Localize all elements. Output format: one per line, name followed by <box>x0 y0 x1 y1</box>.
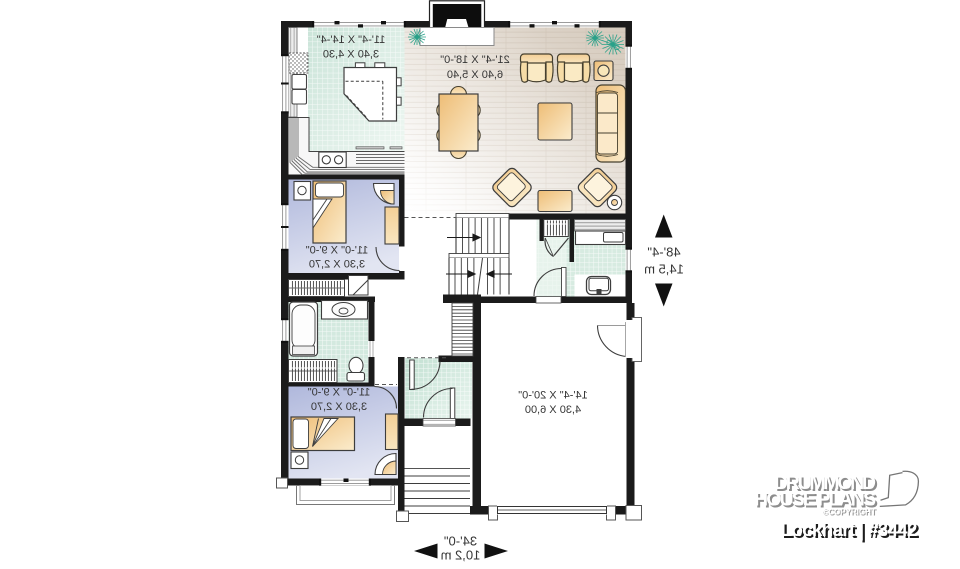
svg-text:3,30 X 2,70: 3,30 X 2,70 <box>311 401 367 413</box>
svg-text:14'-4" X 20'-0": 14'-4" X 20'-0" <box>518 390 588 402</box>
svg-text:©COPYRIGHT: ©COPYRIGHT <box>822 508 876 517</box>
svg-text:6,40 X 5,40: 6,40 X 5,40 <box>447 69 503 81</box>
svg-text:11'-4" X 14'-4": 11'-4" X 14'-4" <box>317 34 386 46</box>
svg-text:10,2 m: 10,2 m <box>441 548 481 563</box>
svg-text:11'-0" X 9'-0": 11'-0" X 9'-0" <box>308 387 371 399</box>
svg-text:4,30 X 6,00: 4,30 X 6,00 <box>525 404 581 416</box>
svg-text:21'-4" X 18'-0": 21'-4" X 18'-0" <box>440 54 510 66</box>
svg-text:3,40 X 4,30: 3,40 X 4,30 <box>323 49 379 61</box>
svg-text:11'-0" X 9'-0": 11'-0" X 9'-0" <box>306 245 369 257</box>
svg-text:14,5 m: 14,5 m <box>644 262 684 277</box>
svg-text:Lockhart | #3442: Lockhart | #3442 <box>781 520 918 541</box>
svg-text:48'-4": 48'-4" <box>647 245 681 260</box>
svg-text:34'-0": 34'-0" <box>444 534 478 549</box>
svg-text:3,30 X 2,70: 3,30 X 2,70 <box>309 259 365 271</box>
